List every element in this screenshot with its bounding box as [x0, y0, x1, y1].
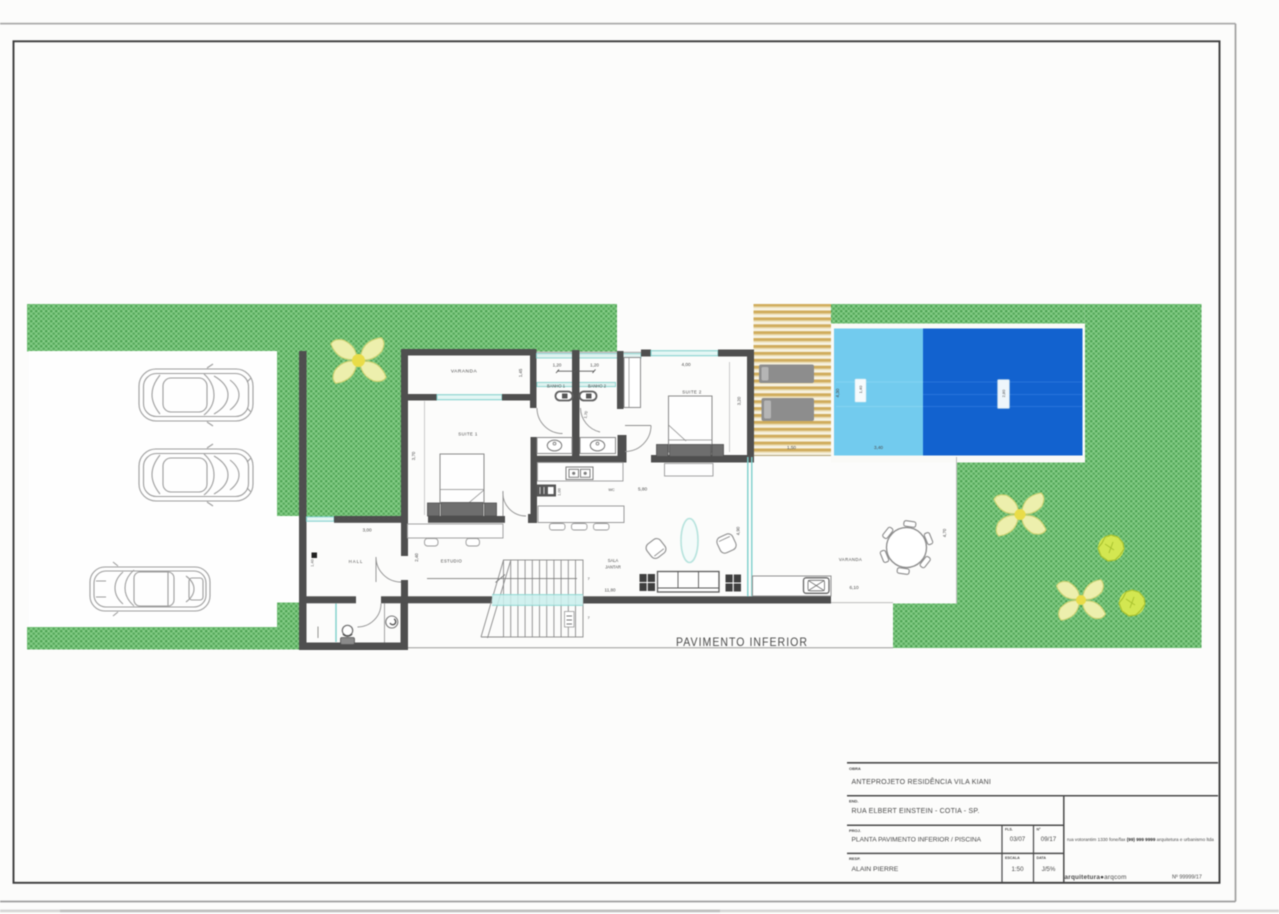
svg-text:03/07: 03/07 [1010, 836, 1026, 843]
svg-text:4,00: 4,00 [681, 362, 691, 367]
svg-text:VARANDA: VARANDA [839, 557, 862, 562]
svg-text:2,40: 2,40 [414, 553, 419, 562]
svg-text:BANHO 1: BANHO 1 [547, 383, 566, 388]
svg-text:PROJ.: PROJ. [849, 828, 861, 833]
svg-text:ALAIN PIERRE: ALAIN PIERRE [852, 866, 899, 873]
svg-text:ANTEPROJETO RESIDÊNCIA VILA KI: ANTEPROJETO RESIDÊNCIA VILA KIANI [852, 777, 992, 786]
svg-text:1,50: 1,50 [787, 445, 796, 450]
svg-text:SUITE 2: SUITE 2 [682, 390, 702, 395]
svg-text:Nº: Nº [1037, 828, 1042, 832]
svg-text:5,80: 5,80 [638, 487, 648, 492]
svg-text:1,40: 1,40 [858, 385, 863, 394]
svg-text:ESCALA: ESCALA [1005, 856, 1020, 860]
svg-text:1,40: 1,40 [311, 559, 315, 566]
svg-text:1:50: 1:50 [1011, 866, 1024, 873]
svg-text:FLS.: FLS. [1005, 828, 1013, 832]
svg-text:PLANTA PAVIMENTO INFERIOR / PI: PLANTA PAVIMENTO INFERIOR / PISCINA [852, 837, 982, 844]
svg-text:J/5%: J/5% [1042, 866, 1056, 873]
svg-text:4,90: 4,90 [736, 526, 741, 535]
svg-text:arquitetura●arqcom: arquitetura●arqcom [1065, 874, 1127, 881]
svg-text:3,00: 3,00 [362, 528, 372, 533]
svg-text:rua votorantim 1330 fone/fax (: rua votorantim 1330 fone/fax (99) 999 99… [1067, 837, 1214, 842]
svg-text:09/17: 09/17 [1041, 836, 1057, 843]
svg-text:WC: WC [608, 488, 615, 492]
svg-text:SUITE 1: SUITE 1 [458, 432, 478, 437]
svg-text:HALL: HALL [349, 559, 364, 564]
svg-text:PAVIMENTO INFERIOR: PAVIMENTO INFERIOR [676, 635, 808, 649]
svg-text:END.: END. [849, 799, 859, 804]
svg-text:VARANDA: VARANDA [451, 369, 478, 375]
svg-text:3,40: 3,40 [874, 445, 883, 450]
svg-text:RUA ELBERT EINSTEIN - COTIA -: RUA ELBERT EINSTEIN - COTIA - SP. [852, 808, 980, 815]
svg-text:Nº 99999/17: Nº 99999/17 [1172, 874, 1202, 880]
svg-text:6,10: 6,10 [849, 585, 859, 590]
svg-text:2,80: 2,80 [1001, 389, 1006, 398]
svg-text:ESTUDIO: ESTUDIO [441, 559, 463, 564]
svg-text:4,70: 4,70 [942, 528, 947, 537]
svg-text:1,20: 1,20 [553, 363, 562, 368]
svg-text:3,70: 3,70 [411, 451, 416, 460]
svg-text:JANTAR: JANTAR [605, 565, 621, 570]
svg-text:3,20: 3,20 [737, 396, 742, 405]
svg-text:1,45: 1,45 [518, 368, 523, 377]
svg-text:BANHO 2: BANHO 2 [588, 383, 607, 388]
svg-text:1,20: 1,20 [590, 363, 599, 368]
svg-text:DATA: DATA [1037, 856, 1047, 860]
svg-text:RESP.: RESP. [849, 856, 861, 861]
svg-text:11,80: 11,80 [605, 588, 616, 593]
svg-text:SALA: SALA [608, 558, 619, 563]
svg-text:4,30: 4,30 [835, 388, 840, 397]
svg-text:1,00: 1,00 [558, 488, 562, 495]
svg-text:OBRA: OBRA [849, 766, 861, 771]
